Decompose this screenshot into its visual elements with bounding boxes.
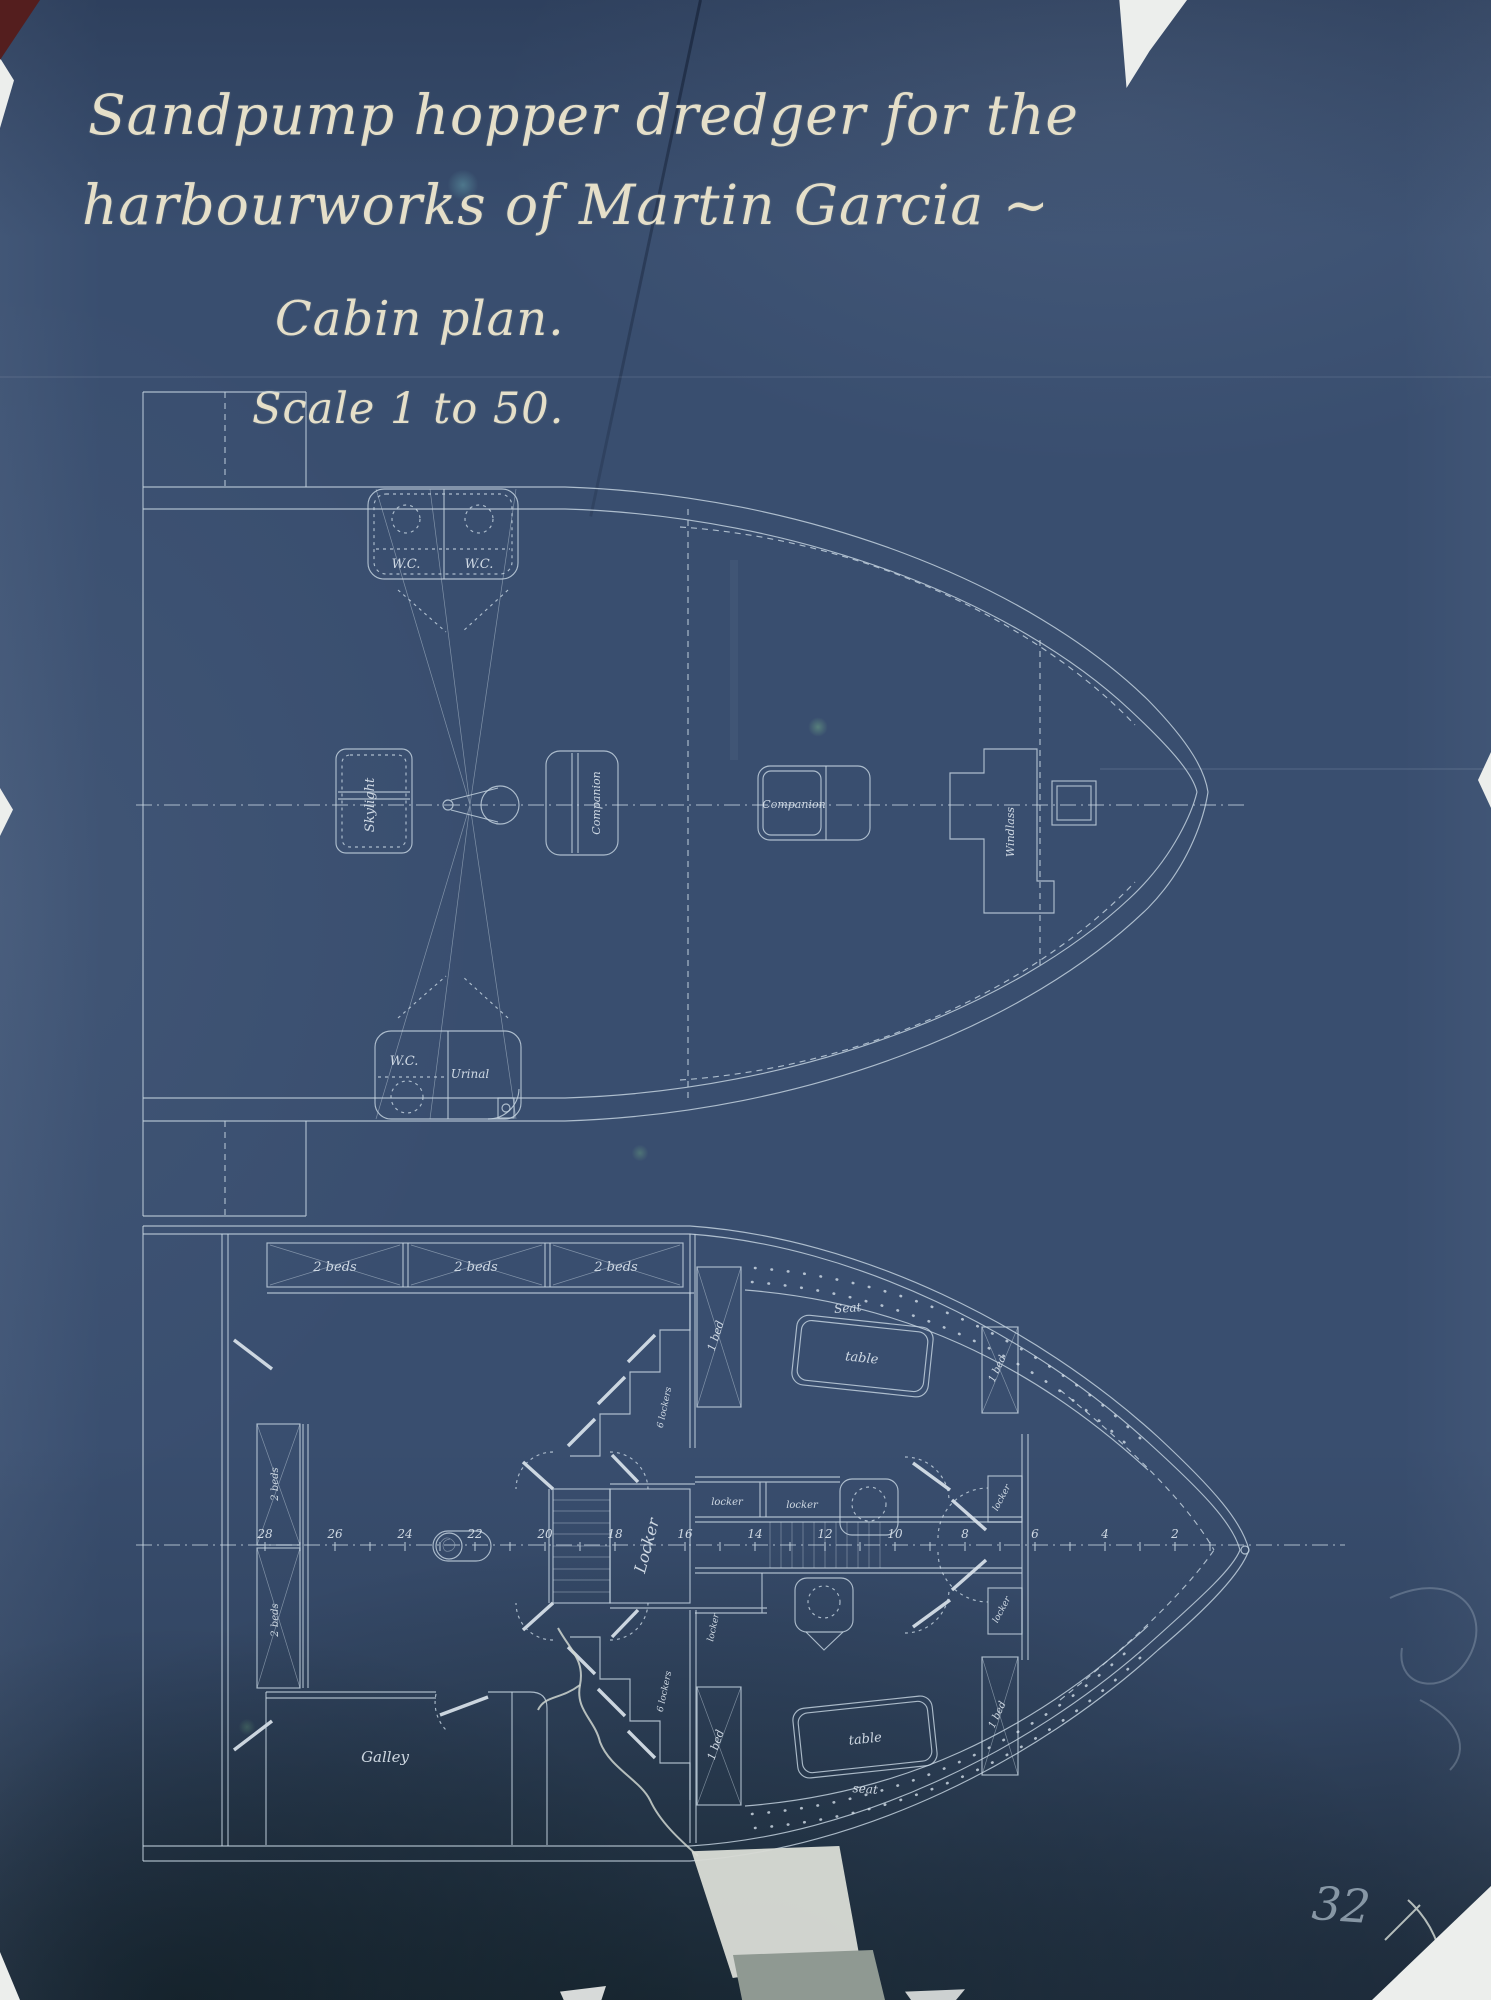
deck-hull-outline	[136, 392, 1246, 1216]
table-upper-label: table	[844, 1349, 879, 1367]
one-bed-label-a: 1 bed	[705, 1319, 727, 1353]
locker-bow-lower: locker	[991, 1595, 1013, 1625]
frame-number-28: 28	[256, 1527, 273, 1541]
frame-number-2: 2	[1170, 1527, 1179, 1541]
frame-number-10: 10	[887, 1527, 903, 1541]
frame-number-12: 12	[817, 1527, 832, 1541]
frame-number-26: 26	[326, 1527, 343, 1541]
saloon-bottom: seat table	[745, 1626, 1148, 1828]
locker-bow-upper: locker	[991, 1483, 1013, 1513]
skylight: Skylight	[336, 749, 412, 853]
sheet-number: 32	[1310, 1876, 1372, 1934]
cabin-plan-drawing: 2 beds 2 beds 2 beds 2 beds 2 beds	[136, 1226, 1345, 1861]
urinal-label: Urinal	[451, 1067, 490, 1081]
frame-number-6: 6	[1031, 1527, 1039, 1541]
corridor: locker locker	[695, 1457, 1022, 1650]
companion-fwd: Companion	[758, 766, 870, 840]
repair-tape-dark	[733, 1950, 885, 2000]
deck-hatch	[1052, 781, 1096, 825]
two-beds-label-3: 2 beds	[593, 1260, 638, 1275]
seat-lower-label: seat	[852, 1781, 878, 1797]
companion-aft-label: Companion	[590, 771, 603, 834]
companion-fwd-label: Companion	[762, 798, 825, 811]
wc-top-block: W.C. W.C.	[368, 489, 518, 579]
wc-starboard-label: W.C.	[465, 557, 494, 572]
companionway: Locker	[516, 1452, 695, 1640]
frame-number-18: 18	[607, 1527, 623, 1541]
two-beds-label-2: 2 beds	[453, 1260, 498, 1275]
single-berths: 1 bed 1 bed 1 bed 1 bed	[697, 1267, 1018, 1805]
frame-number-16: 16	[677, 1527, 693, 1541]
galley-room: Galley	[266, 1692, 547, 1845]
deck-plan-drawing: W.C. W.C. Skylight Companion	[136, 392, 1246, 1216]
seat-upper-label: Seat	[834, 1300, 862, 1316]
bow-lockers: locker locker	[938, 1434, 1028, 1660]
six-lockers-upper: 6 lockers	[656, 1386, 675, 1429]
frame-number-22: 22	[466, 1527, 482, 1541]
one-bed-label-c: 1 bed	[987, 1700, 1009, 1730]
two-beds-left-upper: 2 beds	[270, 1467, 281, 1501]
frame-number-14: 14	[747, 1527, 762, 1541]
frame-scale: 282624222018161412108642	[136, 1527, 1345, 1551]
frame-number-24: 24	[396, 1527, 412, 1541]
two-beds-left-lower: 2 beds	[270, 1603, 281, 1637]
two-beds-label-1: 2 beds	[312, 1260, 357, 1275]
locker-vertical-label: locker	[706, 1612, 722, 1643]
wc-urinal-block: W.C. Urinal	[375, 1031, 521, 1119]
one-bed-label-d: 1 bed	[705, 1728, 727, 1762]
table-lower-label: table	[848, 1730, 883, 1748]
galley-label: Galley	[361, 1748, 409, 1766]
saloon-top: Seat table	[745, 1268, 1148, 1470]
wc-port-label: W.C.	[392, 557, 421, 572]
rigging-lines	[376, 489, 516, 1119]
windlass: Windlass	[950, 749, 1054, 913]
windlass-label: Windlass	[1004, 807, 1017, 857]
skylight-label: Skylight	[363, 777, 378, 832]
frame-number-20: 20	[536, 1527, 553, 1541]
locker-cell-label-1: locker	[711, 1497, 744, 1508]
companion-aft: Companion	[546, 751, 618, 855]
berth-band-top: 2 beds 2 beds 2 beds	[267, 1243, 694, 1293]
six-lockers-lower: 6 lockers	[656, 1670, 675, 1713]
drawing-layer: W.C. W.C. Skylight Companion	[0, 0, 1491, 2000]
frame-number-8: 8	[961, 1527, 969, 1541]
frame-number-4: 4	[1100, 1527, 1109, 1541]
blueprint-scan: Sandpump hopper dredger for the harbourw…	[0, 0, 1491, 2000]
locker-cell-label-2: locker	[786, 1500, 819, 1511]
wc-lower-label: W.C.	[390, 1054, 419, 1069]
